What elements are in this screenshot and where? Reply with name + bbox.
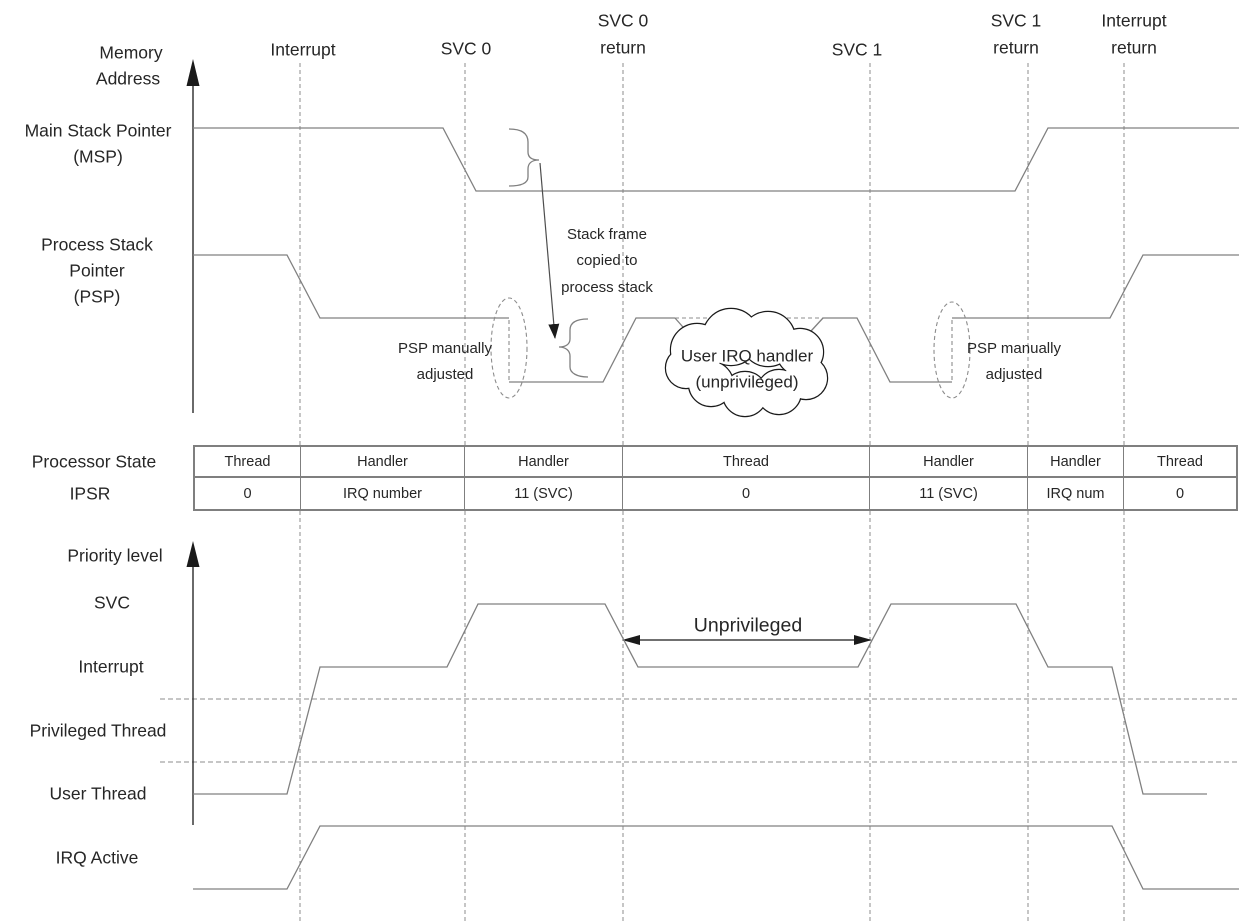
msp-label-line1: Main Stack Pointer	[25, 121, 172, 140]
ipsr-cell-0: 0	[195, 478, 301, 509]
psp-trace-3	[823, 318, 952, 382]
memory-axis-label-line2: Address	[96, 69, 160, 88]
psp-adjusted-left-line1: PSP manually	[398, 341, 492, 358]
psp-stack-brace	[559, 319, 588, 377]
cloud-label-line1: User IRQ handler	[681, 348, 813, 367]
event-label-svc1: SVC 1	[832, 40, 883, 59]
ipsr-cell-3: 0	[623, 478, 870, 509]
state-cell-6: Thread	[1124, 447, 1236, 478]
table-row-label-ipsr: IPSR	[70, 484, 111, 503]
event-label-svc0-return-line2: return	[600, 38, 646, 57]
priority-level-privileged: Privileged Thread	[30, 721, 167, 740]
msp-stack-brace	[509, 129, 539, 186]
state-cell-1: Handler	[301, 447, 465, 478]
memory-axis-arrow-icon	[187, 59, 200, 86]
psp-trace-4	[952, 255, 1239, 318]
ipsr-cell-1: IRQ number	[301, 478, 465, 509]
event-label-interrupt-return-line2: return	[1111, 38, 1157, 57]
psp-label-line1: Process Stack	[41, 235, 153, 254]
timing-diagram-canvas: Thread Handler Handler Thread Handler Ha…	[0, 0, 1239, 922]
psp-trace-1	[193, 255, 509, 318]
psp-adjusted-left-line2: adjusted	[417, 367, 474, 384]
ipsr-cell-4: 11 (SVC)	[870, 478, 1028, 509]
event-label-svc0: SVC 0	[441, 39, 492, 58]
state-cell-4: Handler	[870, 447, 1028, 478]
event-label-svc0-return-line1: SVC 0	[598, 11, 649, 30]
unprivileged-arrowhead-left	[622, 635, 640, 645]
irq-active-trace	[193, 826, 1239, 889]
ipsr-cell-5: IRQ num	[1028, 478, 1124, 509]
stack-frame-annotation-line3: process stack	[561, 280, 653, 297]
priority-level-svc: SVC	[94, 593, 130, 612]
priority-axis-arrow-icon	[187, 541, 200, 567]
unprivileged-label: Unprivileged	[694, 615, 802, 636]
event-label-interrupt-return-line1: Interrupt	[1101, 11, 1166, 30]
state-cell-5: Handler	[1028, 447, 1124, 478]
table-row-label-processor-state: Processor State	[32, 452, 157, 471]
priority-axis-label: Priority level	[67, 546, 162, 565]
state-cell-0: Thread	[195, 447, 301, 478]
event-label-interrupt: Interrupt	[270, 40, 335, 59]
state-cell-2: Handler	[465, 447, 623, 478]
msp-label-line2: (MSP)	[73, 147, 123, 166]
priority-level-user: User Thread	[50, 784, 147, 803]
event-label-svc1-return-line1: SVC 1	[991, 11, 1042, 30]
stack-frame-copy-arrow-icon	[540, 163, 555, 338]
psp-label-line2: Pointer	[69, 261, 124, 280]
priority-level-irq: IRQ Active	[56, 848, 139, 867]
unprivileged-arrowhead-right	[854, 635, 872, 645]
cloud-label-line2: (unprivileged)	[696, 374, 799, 393]
memory-axis	[187, 59, 200, 413]
psp-adjusted-right-line1: PSP manually	[967, 341, 1061, 358]
priority-axis	[187, 541, 200, 825]
psp-trace-2	[509, 318, 675, 382]
ipsr-cell-2: 11 (SVC)	[465, 478, 623, 509]
processor-state-table: Thread Handler Handler Thread Handler Ha…	[193, 445, 1238, 511]
priority-separators	[160, 699, 1239, 762]
psp-label-line3: (PSP)	[74, 287, 121, 306]
stack-frame-annotation-line1: Stack frame	[567, 227, 647, 244]
event-label-svc1-return-line2: return	[993, 38, 1039, 57]
stack-frame-annotation-line2: copied to	[577, 253, 638, 270]
priority-level-interrupt: Interrupt	[78, 657, 143, 676]
psp-adjusted-right-line2: adjusted	[986, 367, 1043, 384]
state-cell-3: Thread	[623, 447, 870, 478]
msp-trace	[193, 128, 1239, 191]
ipsr-cell-6: 0	[1124, 478, 1236, 509]
memory-axis-label-line1: Memory	[99, 43, 162, 62]
